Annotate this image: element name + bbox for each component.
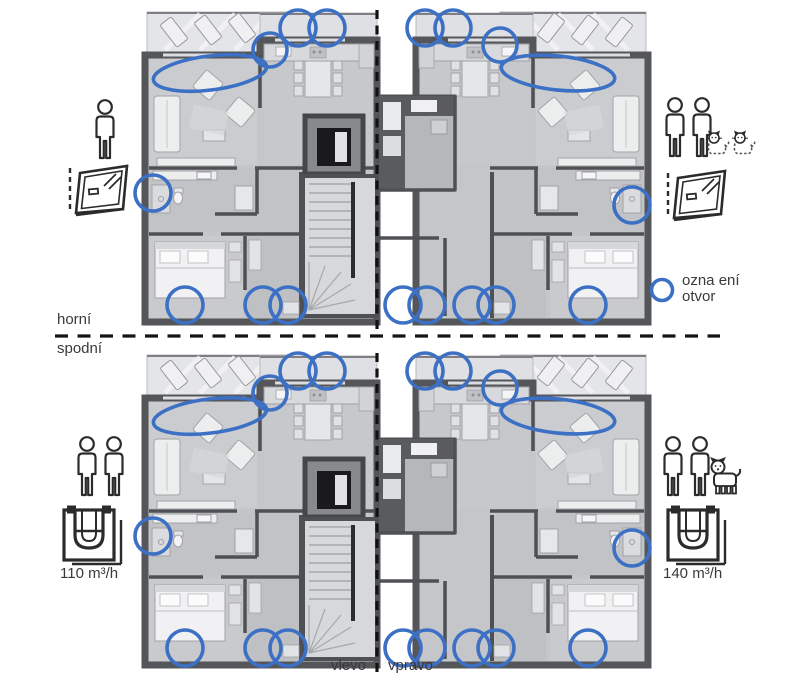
legend-opening-marker bbox=[652, 280, 673, 301]
occupants-top-left bbox=[97, 100, 114, 158]
legend-line1: ozna ení bbox=[682, 273, 740, 289]
vent-unit-icon-bottom-right bbox=[668, 506, 725, 565]
occupants-bottom-left bbox=[79, 437, 123, 495]
label-lower-floor: spodní bbox=[57, 340, 102, 357]
vent-unit-icon-bottom-left bbox=[64, 506, 121, 565]
legend-line2: otvor bbox=[682, 289, 740, 305]
window-icon-top-left bbox=[70, 166, 127, 215]
floor-plan-bottom bbox=[135, 353, 650, 675]
pet-bottom-right-dog bbox=[710, 457, 740, 494]
label-left-unit: vlevo bbox=[331, 657, 366, 674]
floor-plan-top bbox=[135, 10, 650, 332]
pets-top-right-cats bbox=[706, 131, 755, 154]
legend-text: ozna ení otvor bbox=[682, 273, 740, 305]
window-icon-top-right bbox=[668, 171, 725, 220]
flow-rate-bottom-left: 110 m³/h bbox=[60, 565, 118, 582]
label-upper-floor: horní bbox=[57, 311, 91, 328]
label-right-unit: vpravo bbox=[388, 657, 433, 674]
flow-rate-bottom-right: 140 m³/h bbox=[663, 565, 722, 582]
ventilation-diagram: horní spodní vlevo vpravo ozna ení otvor… bbox=[0, 0, 800, 682]
occupants-bottom-right bbox=[665, 437, 709, 495]
occupants-top-right bbox=[667, 98, 711, 156]
